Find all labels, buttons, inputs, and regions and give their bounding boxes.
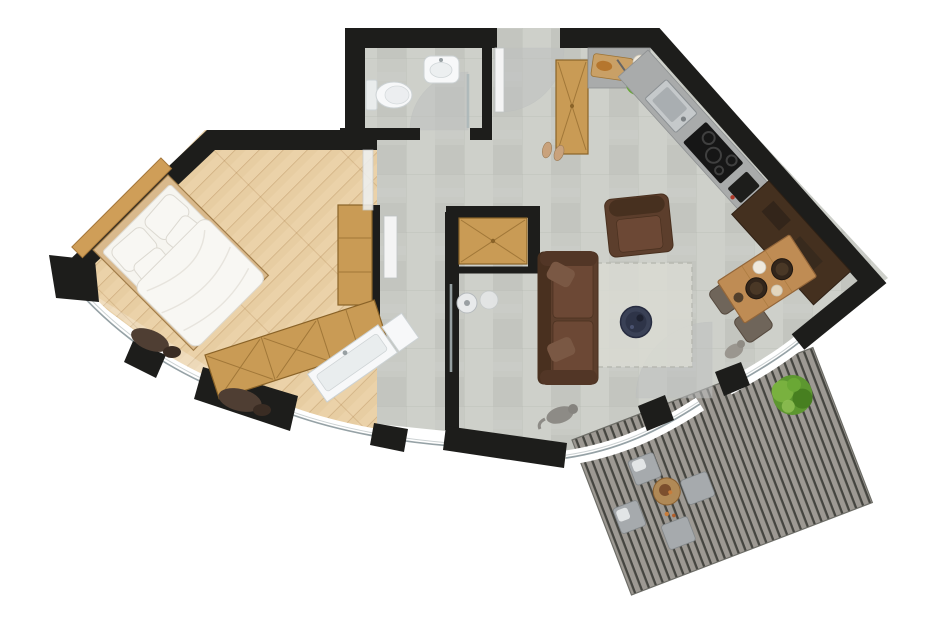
washbasin [424, 56, 459, 83]
pier [370, 423, 408, 452]
bedroom-sliding-door[interactable] [363, 150, 373, 210]
floor-plan-stage [0, 0, 940, 637]
armchair [604, 193, 674, 257]
hall-pendant [480, 291, 498, 309]
entrance-door-leaf[interactable] [495, 48, 504, 112]
shower-room-door-leaf[interactable] [384, 216, 397, 278]
coffee-table [621, 307, 652, 338]
details [480, 291, 498, 309]
pier [49, 255, 99, 302]
sofa-arm [540, 370, 597, 385]
sofa [538, 251, 598, 385]
floor-plan-canvas [0, 0, 940, 637]
wardrobe-vertical [338, 205, 372, 305]
entrance-wardrobe [556, 60, 588, 154]
toilet [366, 80, 412, 110]
sofa-arm [540, 251, 597, 266]
hall-closet [459, 218, 527, 264]
